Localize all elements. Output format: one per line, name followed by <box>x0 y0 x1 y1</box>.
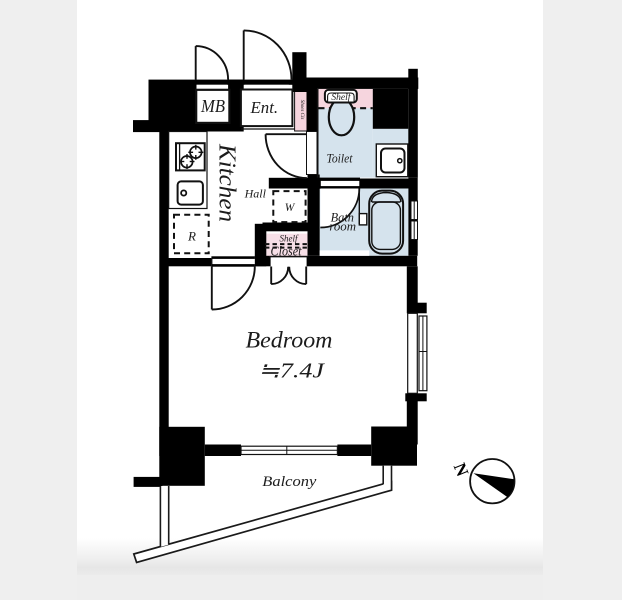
svg-text:Kitchen: Kitchen <box>214 143 240 222</box>
svg-text:Closet: Closet <box>271 244 303 259</box>
svg-text:W: W <box>285 202 296 214</box>
svg-text:Bedroom: Bedroom <box>246 327 333 352</box>
svg-text:MB: MB <box>200 96 225 116</box>
svg-text:R: R <box>187 229 196 244</box>
svg-text:Hall: Hall <box>244 188 266 200</box>
svg-text:≒7.4J: ≒7.4J <box>258 359 326 383</box>
svg-text:room: room <box>329 219 356 234</box>
svg-text:Shelf: Shelf <box>331 92 351 103</box>
svg-text:Balcony: Balcony <box>262 474 317 490</box>
svg-text:Shoes Cls: Shoes Cls <box>299 100 304 120</box>
svg-text:Ent.: Ent. <box>250 98 278 117</box>
svg-text:Toilet: Toilet <box>327 151 353 166</box>
